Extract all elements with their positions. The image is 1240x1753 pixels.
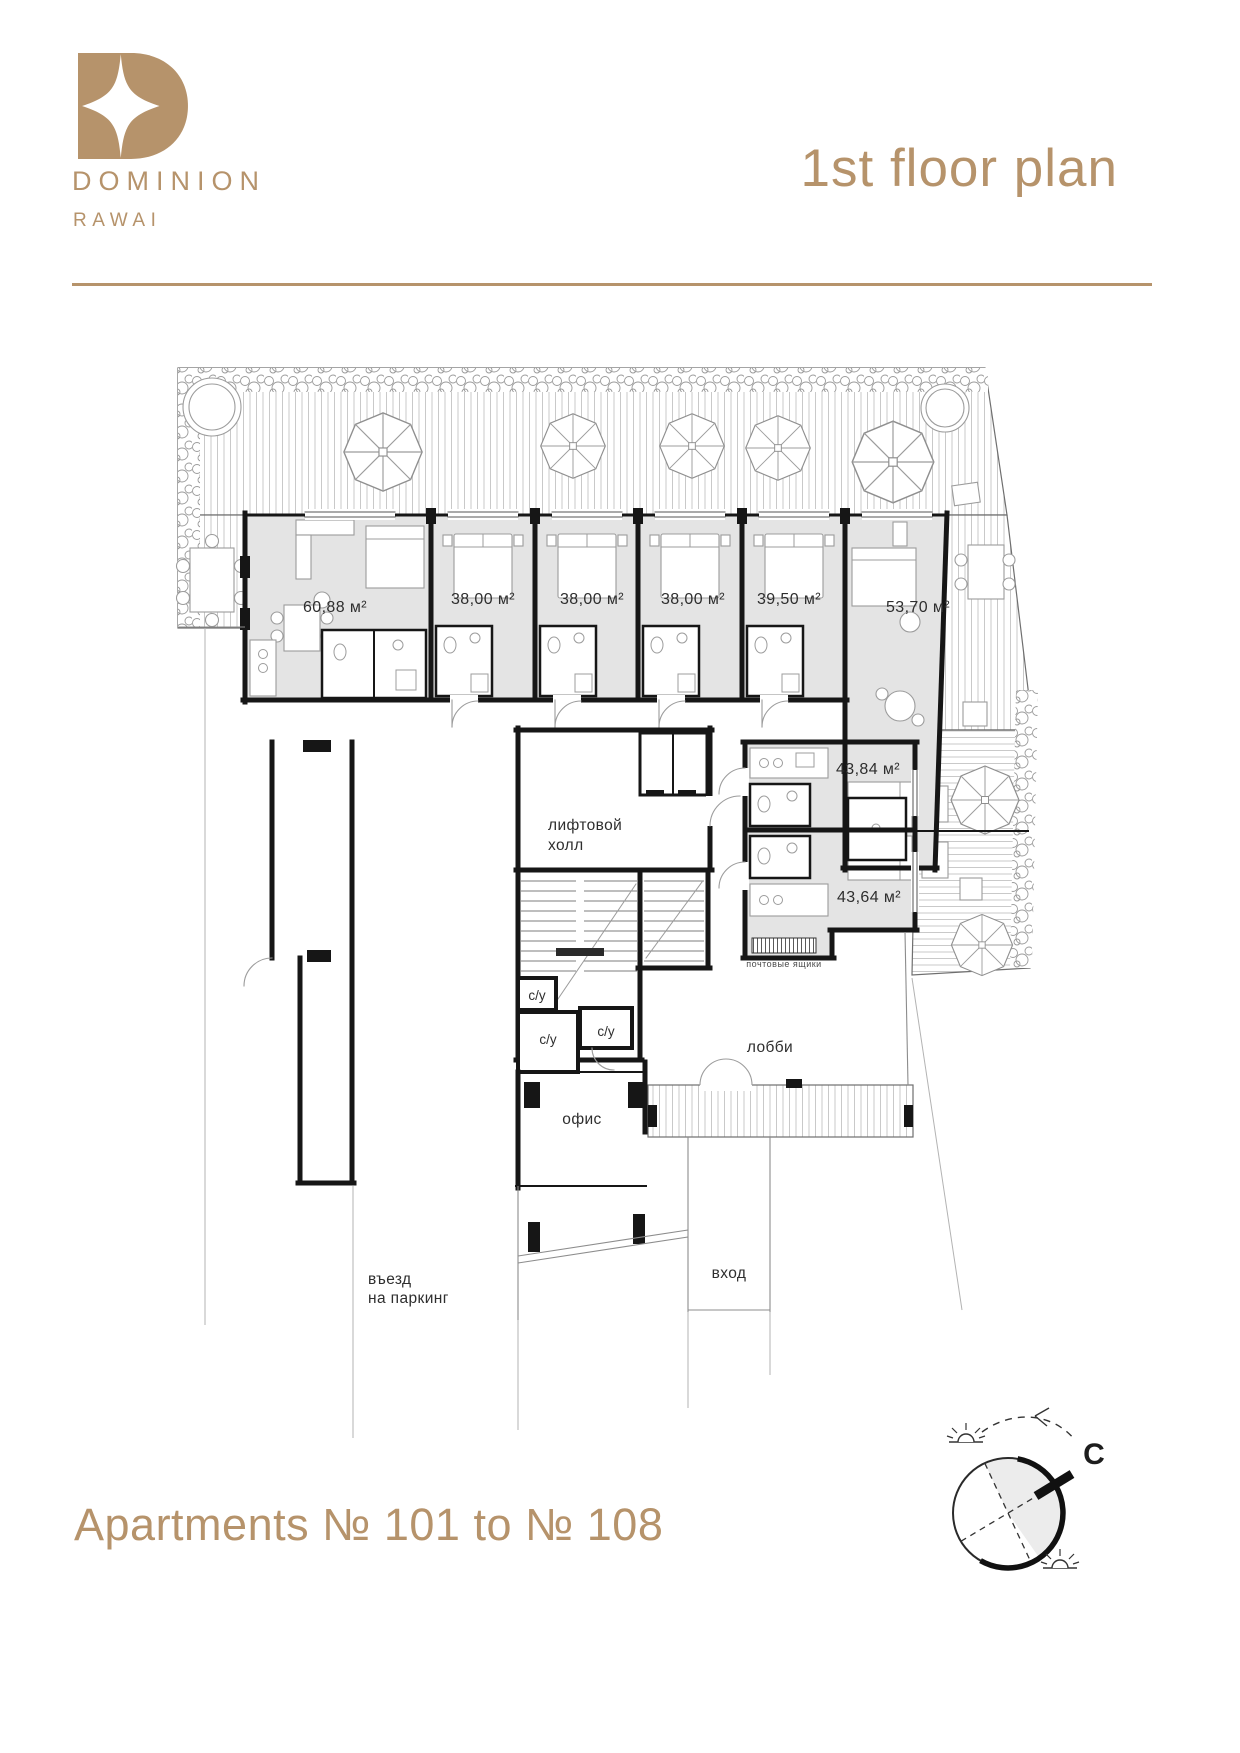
label-wc-3: с/у bbox=[597, 1024, 615, 1039]
apartments-range-caption: Apartments № 101 to № 108 bbox=[74, 1499, 663, 1551]
floor-plan: 60,88 м² 38,00 м² 38,00 м² 38,00 м² 39,5… bbox=[0, 0, 1240, 1753]
unit-area-104: 38,00 м² bbox=[661, 591, 725, 608]
unit-area-107: 43,84 м² bbox=[836, 761, 900, 778]
label-mailboxes: почтовые ящики bbox=[746, 959, 821, 969]
service-rooms bbox=[516, 978, 646, 1188]
unit-area-106: 53,70 м² bbox=[886, 599, 950, 616]
unit-area-108: 43,64 м² bbox=[837, 889, 901, 906]
label-office: офис bbox=[562, 1111, 601, 1128]
unit-area-105: 39,50 м² bbox=[757, 591, 821, 608]
label-parking-1: въезд bbox=[368, 1271, 412, 1288]
compass: C bbox=[947, 1408, 1105, 1568]
parking-corridor bbox=[244, 740, 354, 1183]
unit-area-102: 38,00 м² bbox=[451, 591, 515, 608]
label-wc-2: с/у bbox=[539, 1032, 557, 1047]
label-wc-1: с/у bbox=[528, 988, 546, 1003]
unit-area-101: 60,88 м² bbox=[303, 599, 367, 616]
label-lobby: лобби bbox=[747, 1039, 793, 1056]
label-elevator-hall-2: холл bbox=[548, 837, 584, 854]
compass-north-label: C bbox=[1083, 1438, 1105, 1471]
label-entrance: вход bbox=[712, 1265, 747, 1282]
label-elevator-hall-1: лифтовой bbox=[548, 817, 622, 834]
label-parking-2: на паркинг bbox=[368, 1290, 449, 1307]
unit-area-103: 38,00 м² bbox=[560, 591, 624, 608]
